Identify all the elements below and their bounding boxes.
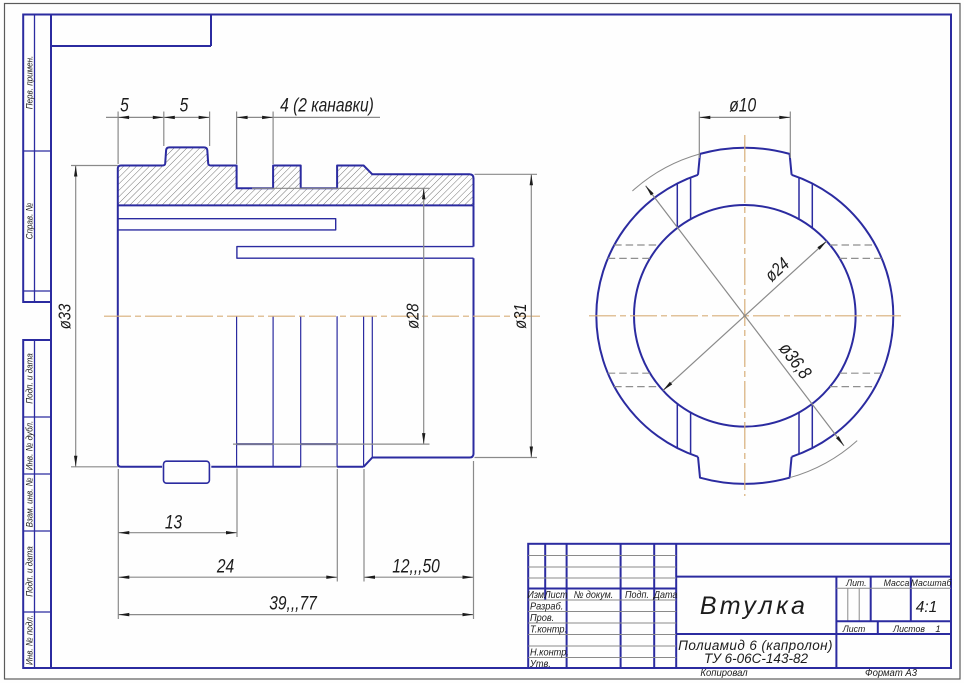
svg-text:Втулка: Втулка	[700, 592, 808, 620]
svg-text:Разраб.: Разраб.	[530, 601, 563, 612]
svg-text:Перв. примен.: Перв. примен.	[24, 56, 35, 110]
svg-text:Лист: Лист	[842, 624, 866, 634]
svg-text:12,,,50: 12,,,50	[392, 555, 440, 577]
svg-text:ø28: ø28	[403, 303, 423, 329]
svg-text:Листов: Листов	[892, 624, 925, 634]
svg-text:ø10: ø10	[729, 94, 756, 116]
svg-text:Копировал: Копировал	[700, 668, 748, 679]
svg-text:1: 1	[935, 624, 940, 635]
svg-text:5: 5	[120, 94, 129, 116]
svg-text:Т.контр.: Т.контр.	[530, 624, 567, 635]
svg-text:Справ. №: Справ. №	[24, 203, 35, 240]
svg-text:5: 5	[180, 94, 189, 116]
svg-text:4 (2 канавки): 4 (2 канавки)	[280, 94, 374, 116]
svg-text:Дата: Дата	[653, 590, 678, 602]
svg-text:№ докум.: № докум.	[574, 590, 614, 602]
svg-text:Пров.: Пров.	[530, 613, 554, 624]
svg-text:13: 13	[165, 511, 183, 533]
svg-text:Инв. № подл.: Инв. № подл.	[24, 615, 35, 665]
svg-text:Лит.: Лит.	[845, 578, 866, 588]
svg-text:Утв.: Утв.	[529, 659, 551, 670]
svg-text:39,,,77: 39,,,77	[269, 592, 318, 614]
svg-text:Подп.: Подп.	[625, 590, 649, 602]
svg-text:Инв. № дубл.: Инв. № дубл.	[24, 421, 35, 471]
svg-text:Подп. и дата: Подп. и дата	[24, 546, 35, 597]
svg-text:ТУ 6-06С-143-82: ТУ 6-06С-143-82	[704, 651, 808, 666]
svg-text:Формат А3: Формат А3	[865, 668, 918, 679]
svg-text:Н.контр.: Н.контр.	[530, 647, 569, 658]
svg-text:4:1: 4:1	[916, 599, 938, 616]
svg-text:ø31: ø31	[511, 303, 531, 328]
svg-text:Подп. и дата: Подп. и дата	[24, 353, 35, 404]
svg-text:Лист: Лист	[543, 590, 567, 602]
svg-text:Масштаб: Масштаб	[911, 578, 953, 588]
svg-text:24: 24	[216, 555, 234, 577]
svg-text:Масса: Масса	[884, 578, 910, 588]
svg-text:ø33: ø33	[55, 304, 75, 329]
svg-text:Взам. инв. №: Взам. инв. №	[24, 478, 35, 528]
